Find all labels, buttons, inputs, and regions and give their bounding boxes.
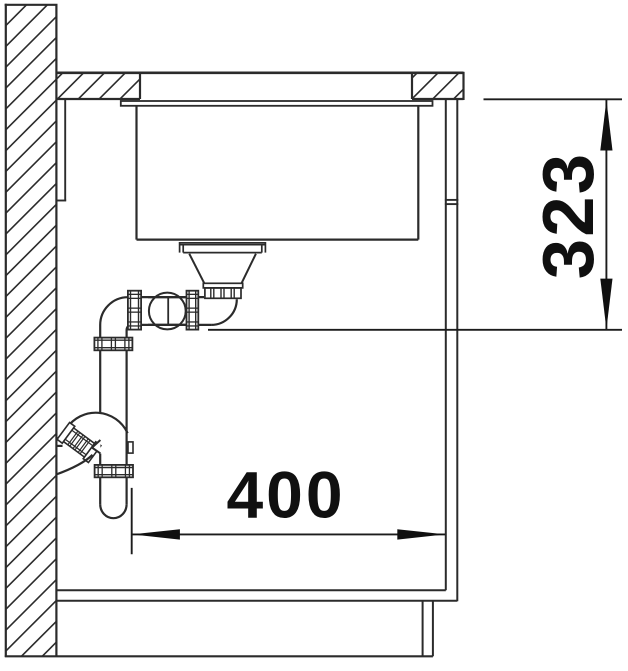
svg-text:323: 323 xyxy=(528,152,609,280)
svg-text:400: 400 xyxy=(226,458,345,532)
